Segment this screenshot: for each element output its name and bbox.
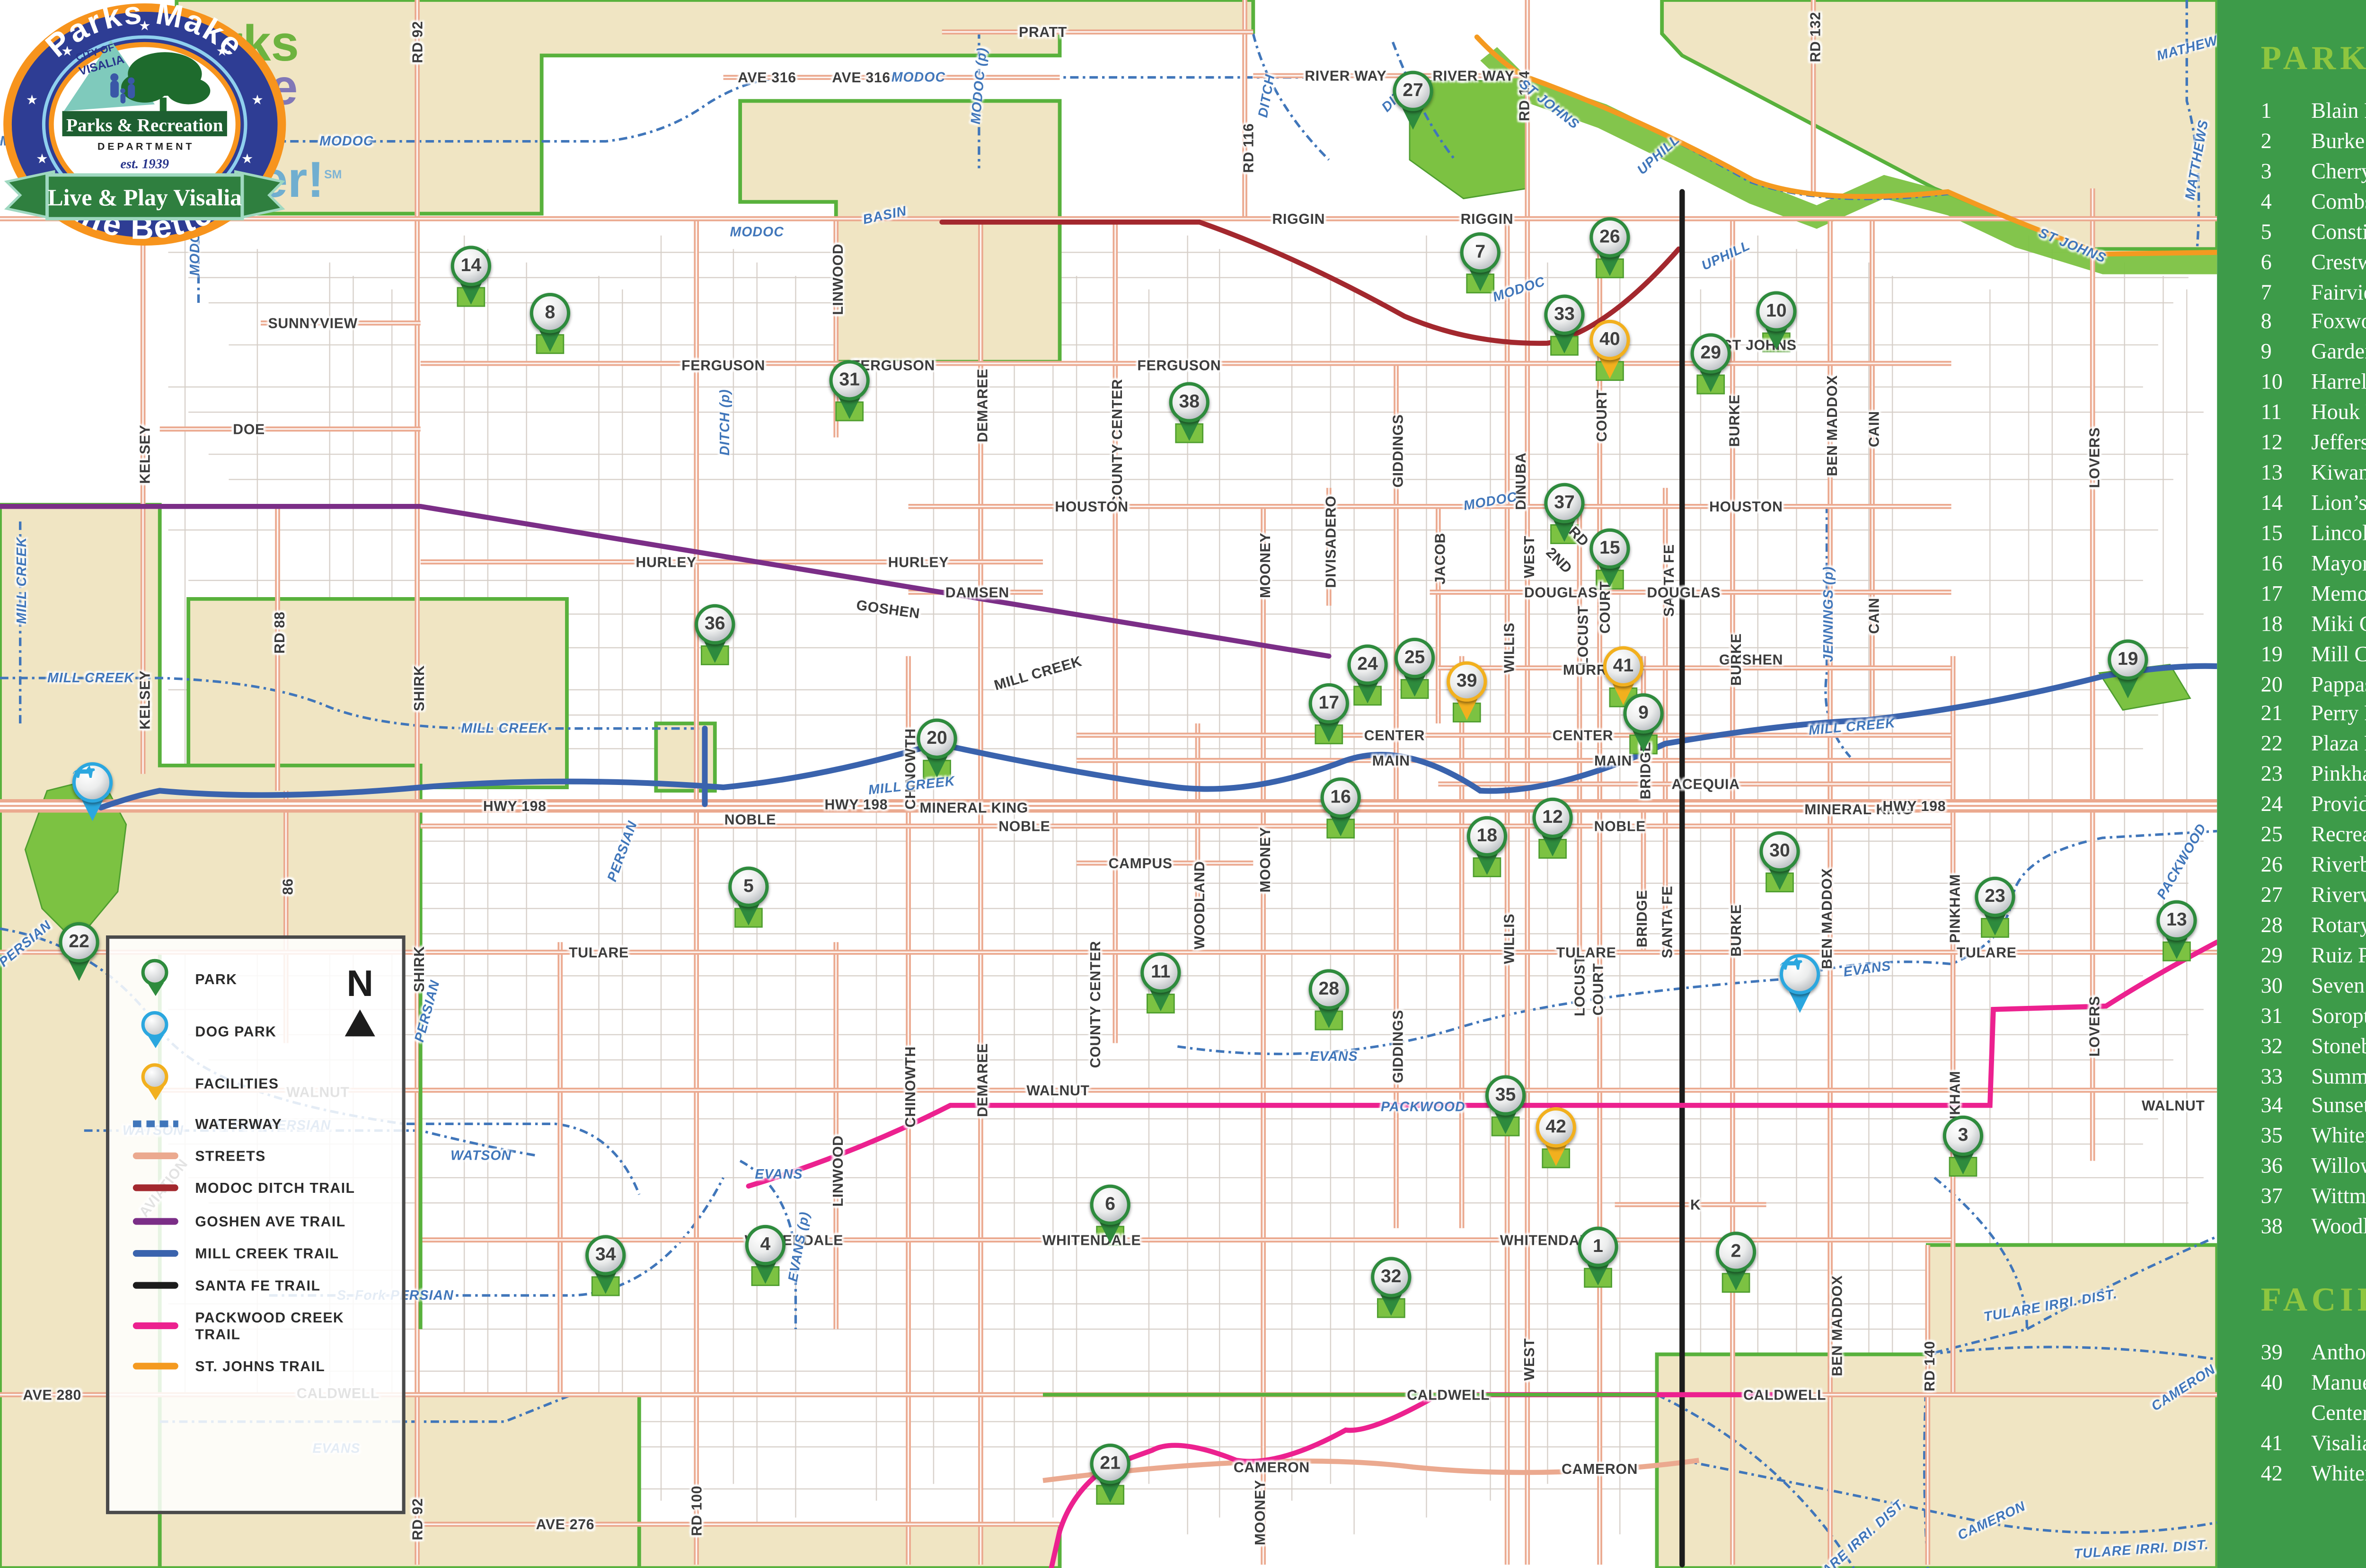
list-name: Riverbend Park [2311,850,2366,880]
park-item-23: 23Pinkham Park [2261,759,2366,790]
list-name: Kiwanis Park [2311,458,2366,488]
pin-head: 32 [1371,1257,1411,1297]
legend-line-icon [133,1153,178,1159]
map-pin-14[interactable]: 14 [449,246,493,309]
list-name: Foxwood Park [2311,307,2366,337]
list-number: 24 [2261,789,2312,819]
map-pin-21[interactable]: 21 [1088,1444,1132,1507]
list-number: 9 [2261,337,2312,367]
street-label-river-way: RIVER WAY [1432,67,1514,84]
map-pin-12[interactable]: 12 [1531,798,1574,862]
legend-line-icon [133,1282,178,1288]
list-number: 11 [2261,397,2312,428]
street-label-lovers: LOVERS [2086,427,2103,488]
street-label-demaree: DEMAREE [974,1043,991,1117]
map-pin-10[interactable]: 10 [1755,291,1798,355]
legend-item-santa-fe-trail: SANTA FE TRAIL [133,1277,385,1294]
parks-title: PARKS [2261,40,2366,79]
park-item-37: 37Wittman Village Park [2261,1181,2366,1212]
list-name: Mill Creek Garden Park [2311,639,2366,669]
street-label-west: WEST [1521,1338,1538,1381]
street-label-woodland: WOODLAND [1191,861,1208,950]
park-item-36: 36Willow Glen Park [2261,1151,2366,1181]
street-label-county-center: COUNTY CENTER [1109,379,1126,506]
legend-item-label: MODOC DITCH TRAIL [195,1180,355,1197]
north-arrow-icon [345,1009,375,1036]
street-label-county-center: COUNTY CENTER [1086,941,1104,1068]
street-label-cameron: CAMERON [1234,1459,1310,1476]
list-name: Summers Park [2311,1061,2366,1091]
street-label-riggin: RIGGIN [1461,210,1514,227]
street-label-mineral-king: MINERAL KING [919,799,1028,816]
list-number: 41 [2261,1428,2312,1458]
street-label-ferguson: FERGUSON [681,357,765,374]
waterway-label-modoc: MODOC [892,70,945,85]
list-number: 33 [2261,1061,2312,1091]
street-label-santa-fe: SANTA FE [1660,544,1677,617]
street-label-walnut: WALNUT [2142,1097,2205,1114]
map-pin-5[interactable]: 5 [727,867,770,931]
street-label-douglas: DOUGLAS [1647,584,1721,601]
street-label-mooney: MOONEY [1256,532,1273,598]
facilities-list: 39Anthony Community Center40Manuel F. He… [2261,1338,2366,1489]
map-pin-22[interactable]: 22 [57,922,101,986]
svg-text:D E P A R T M E N T: D E P A R T M E N T [97,141,192,152]
list-name: Combs Park [2311,186,2366,217]
map-pin-42[interactable]: 42 [1534,1107,1578,1171]
park-item-17: 17Memorial Park [2261,578,2366,608]
street-label-rd-92: RD 92 [409,1498,426,1540]
list-name: Cherry Meadow Park [2311,156,2366,186]
street-label-bridge: BRIDGE [1633,890,1651,948]
park-item-14: 14Lion’s Park [2261,488,2366,518]
street-label-jacob: JACOB [1431,533,1448,584]
list-number: 2 [2261,126,2312,156]
street-label-kelsey: KELSEY [136,670,153,730]
pin-head: 17 [1309,683,1349,723]
waterway-label-evans: EVANS [1310,1049,1358,1064]
street-label-tulare: TULARE [1957,944,2017,961]
street-label-center: CENTER [1553,727,1614,744]
list-name: Seven Oaks Park [2311,970,2366,1001]
map-pin-24[interactable]: 24 [1346,644,1389,708]
legend-waterway-icon [133,1120,178,1127]
svg-text:est. 1939: est. 1939 [120,157,169,172]
park-item-35: 35Whitendale Park [2261,1121,2366,1151]
list-name: Lion’s Park [2311,488,2366,518]
list-number: 32 [2261,1031,2312,1061]
map-pin-40[interactable]: 40 [1588,320,1632,384]
legend-item-mill-creek-trail: MILL CREEK TRAIL [133,1244,385,1261]
pin-head: 5 [728,867,768,907]
pin-head: 35 [1485,1075,1526,1115]
list-name: Sunset Park [2311,1091,2366,1121]
north-arrow: N [345,962,375,1036]
street-label-caldwell: CALDWELL [1743,1386,1826,1403]
legend-pin-icon [133,959,178,999]
list-name: Pinkham Park [2311,759,2366,790]
pin-head: 29 [1691,333,1731,373]
pin-head: 9 [1623,693,1663,733]
pin-head: 36 [695,604,735,644]
map-pin-9[interactable]: 9 [1622,693,1665,757]
street-label-river-way: RIVER WAY [1305,67,1386,84]
street-label-ave-316: AVE 316 [738,69,796,86]
map-pin-37[interactable]: 37 [1543,483,1586,547]
map-pin-29[interactable]: 29 [1689,333,1732,397]
waterway-label-mill-creek: MILL CREEK [461,721,548,736]
street-label-mooney: MOONEY [1256,827,1273,893]
street-label-burke: BURKE [1726,394,1743,447]
map-pin-7[interactable]: 7 [1458,232,1502,296]
list-number: 38 [2261,1212,2312,1242]
legend-item-label: STREETS [195,1148,265,1165]
map-pin-33[interactable]: 33 [1543,295,1586,359]
svg-text:★: ★ [251,92,263,107]
street-label-ave-280: AVE 280 [23,1386,81,1403]
park-item-3: 3Cherry Meadow Park [2261,156,2366,186]
street-label-cameron: CAMERON [1562,1460,1638,1477]
street-label-pinkham: PINKHAM [1946,874,1963,943]
list-name: Plaza Park [2311,729,2366,759]
legend-item-facilities: FACILITIES [133,1063,385,1103]
list-number: 22 [2261,729,2312,759]
park-item-11: 11Houk Park [2261,397,2366,428]
street-label-hurley: HURLEY [636,554,697,571]
waterway-label-packwood: PACKWOOD [1381,1100,1466,1115]
map-pin-30[interactable]: 30 [1758,831,1801,895]
waterway-label-mill-creek: MILL CREEK [14,537,29,624]
street-label-demaree: DEMAREE [974,369,991,442]
list-name: Ruiz Park [2311,940,2366,970]
pin-head: 26 [1589,217,1630,257]
list-name: Manuel F. Hernandez Community Center [2311,1368,2366,1428]
street-label-shirk: SHIRK [410,946,427,992]
park-item-21: 21Perry Family Park [2261,699,2366,729]
street-label-court: COURT [1593,389,1610,442]
pin-head: 19 [2108,639,2148,679]
street-label-rd-100: RD 100 [688,1486,705,1536]
map-pin-26[interactable]: 26 [1588,217,1632,281]
list-number: 28 [2261,910,2312,940]
map-pin-4[interactable]: 4 [743,1225,787,1289]
list-name: Visalia Senior Center [2311,1428,2366,1458]
legend-item-label: DOG PARK [195,1023,276,1040]
facility-item-40: 40Manuel F. Hernandez Community Center [2261,1368,2366,1428]
street-label-linwood: LINWOOD [830,244,847,315]
street-label-noble: NOBLE [1594,818,1646,835]
park-item-28: 28Rotary Park [2261,910,2366,940]
map-pin-31[interactable]: 31 [828,360,871,424]
pin-head: 22 [59,922,99,962]
map-pin-32[interactable]: 32 [1369,1257,1413,1321]
svg-text:Parks & Recreation: Parks & Recreation [66,115,223,135]
list-number: 10 [2261,367,2312,397]
pin-head: 28 [1309,969,1349,1009]
list-number: 42 [2261,1458,2312,1489]
map-pin-38[interactable]: 38 [1167,382,1211,446]
pin-head: 24 [1347,644,1387,685]
list-number: 14 [2261,488,2312,518]
list-number: 5 [2261,217,2312,247]
park-item-25: 25Recreation Park [2261,819,2366,850]
list-number: 15 [2261,518,2312,548]
map-pin-8[interactable]: 8 [528,293,572,357]
legend-item-packwood-creek-trail: PACKWOOD CREEK TRAIL [133,1309,385,1343]
waterway-label-ditch-p-: DITCH (p) [717,389,733,456]
street-label-kelsey: KELSEY [136,424,153,484]
pin-head: 20 [917,719,957,759]
park-item-19: 19Mill Creek Garden Park [2261,639,2366,669]
pin-head: 6 [1090,1185,1130,1225]
street-label-86: 86 [279,878,296,895]
pin-head: 18 [1467,816,1507,856]
map-pin-16[interactable]: 16 [1319,777,1362,841]
list-number: 6 [2261,247,2312,277]
legend-item-label: PARK [195,971,237,988]
svg-text:★: ★ [36,151,48,167]
pin-head: 37 [1544,483,1584,523]
list-name: Crestwood Park [2311,247,2366,277]
map-pin-dog-park[interactable] [71,762,114,826]
map-pin-25[interactable]: 25 [1393,638,1436,702]
street-label-hurley: HURLEY [888,554,949,571]
park-item-29: 29Ruiz Park [2261,940,2366,970]
street-label-noble: NOBLE [724,811,776,828]
map-pin-15[interactable]: 15 [1588,529,1632,592]
parks-list: 1Blain Park2Burke Park3Cherry Meadow Par… [2261,96,2366,1242]
street-label-ben-maddox: BEN MADDOX [1823,375,1840,476]
park-item-20: 20Pappas Park [2261,669,2366,699]
legend-item-label: WATERWAY [195,1115,282,1132]
facility-item-41: 41Visalia Senior Center [2261,1428,2366,1458]
park-item-18: 18Miki City Park [2261,608,2366,639]
street-label-main: MAIN [1372,752,1410,769]
street-label-k: K [1690,1196,1701,1213]
pin-head: 16 [1321,777,1361,818]
street-label-locust: LOCUST [1574,606,1591,667]
list-name: Memorial Park [2311,578,2366,608]
department-badge: CITY OF VISALIA Parks & Recreation D E P… [0,0,289,263]
map-pin-23[interactable]: 23 [1973,877,2017,941]
list-number: 12 [2261,428,2312,458]
park-item-34: 34Sunset Park [2261,1091,2366,1121]
street-label-burke: BURKE [1728,633,1745,686]
pin-head: 38 [1169,382,1209,422]
street-label-divisadero: DIVISADERO [1322,495,1339,588]
street-label-santa-fe: SANTA FE [1659,886,1676,958]
map-canvas[interactable]: PRATTAVE 316AVE 316RIVER WAYRIVER WAYRD … [0,0,2217,1568]
street-label-riggin: RIGGIN [1272,210,1325,227]
map-pin-18[interactable]: 18 [1465,816,1509,880]
pin-head: 25 [1395,638,1435,678]
map-pin-3[interactable]: 3 [1941,1116,1985,1180]
street-label-court: COURT [1589,963,1607,1015]
street-label-rd-132: RD 132 [1807,12,1824,62]
sidebar: PARKS 1Blain Park2Burke Park3Cherry Mead… [2217,0,2366,1568]
legend-item-label: GOSHEN AVE TRAIL [195,1212,345,1229]
legend-pin-icon [133,1011,178,1051]
street-label-shirk: SHIRK [410,665,427,712]
pin-head: 4 [745,1225,786,1265]
list-name: Burke Park [2311,126,2366,156]
street-label-hwy-198: HWY 198 [483,797,547,814]
pin-head: 27 [1393,71,1433,111]
waterway-label-evans: EVANS [755,1167,803,1182]
street-label-ben-maddox: BEN MADDOX [1828,1275,1845,1376]
legend-item-modoc-ditch-trail: MODOC DITCH TRAIL [133,1180,385,1197]
list-number: 17 [2261,578,2312,608]
map-pin-19[interactable]: 19 [2106,639,2150,703]
map-pin-1[interactable]: 1 [1576,1226,1620,1290]
street-label-rd-140: RD 140 [1921,1341,1938,1392]
pin-head: 33 [1544,295,1584,335]
list-name: Riverway Sports Park [2311,880,2366,910]
list-number: 13 [2261,458,2312,488]
legend-item-label: MILL CREEK TRAIL [195,1244,339,1261]
pin-head: 7 [1460,232,1501,273]
street-label-locust: LOCUST [1571,955,1588,1016]
street-label-ave-276: AVE 276 [536,1516,595,1533]
park-item-26: 26Riverbend Park [2261,850,2366,880]
street-label-tulare: TULARE [1556,944,1616,961]
street-label-giddings: GIDDINGS [1389,1010,1406,1083]
park-item-16: 16Mayor’s Park [2261,548,2366,579]
map-pin-6[interactable]: 6 [1088,1185,1132,1249]
pin-head: 41 [1603,646,1643,687]
map-pin-28[interactable]: 28 [1307,969,1351,1033]
street-label-rd-116: RD 116 [1240,123,1257,173]
list-number: 26 [2261,850,2312,880]
park-item-30: 30Seven Oaks Park [2261,970,2366,1001]
street-label-campus: CAMPUS [1109,854,1173,872]
park-item-38: 38Woodland Park [2261,1212,2366,1242]
waterway-label-modoc: MODOC [730,225,784,240]
street-label-burke: BURKE [1728,904,1745,957]
legend-item-label: PACKWOOD CREEK TRAIL [195,1309,385,1343]
list-name: Whitendale Park [2311,1121,2366,1151]
park-item-24: 24Provident Skate Park [2261,789,2366,819]
legend-item-label: FACILITIES [195,1075,279,1092]
park-item-31: 31Soroptimist Park [2261,1000,2366,1031]
pin-head: 13 [2156,900,2197,941]
list-name: Woodland Park [2311,1212,2366,1242]
legend-line-icon [133,1217,178,1224]
list-number: 18 [2261,608,2312,639]
pin-head: 40 [1589,320,1630,360]
legend-item-label: SANTA FE TRAIL [195,1277,320,1294]
list-name: Recreation Park [2311,819,2366,850]
street-label-rd-92: RD 92 [409,21,426,63]
map-pin-2[interactable]: 2 [1714,1232,1757,1295]
map-pin-35[interactable]: 35 [1483,1075,1527,1139]
list-name: Fairview Park [2311,277,2366,307]
pin-head: 10 [1756,291,1796,331]
map-pin-27[interactable]: 27 [1391,71,1435,135]
list-number: 21 [2261,699,2312,729]
street-label-willis: WILLIS [1501,914,1518,964]
street-label-noble: NOBLE [998,818,1050,835]
street-label-sunnyview: SUNNYVIEW [268,315,357,332]
street-label-walnut: WALNUT [1026,1082,1090,1099]
pin-head: 3 [1943,1116,1983,1156]
legend-pin-icon [133,1063,178,1103]
list-name: Jefferson Park [2311,428,2366,458]
poster: PRATTAVE 316AVE 316RIVER WAYRIVER WAYRD … [0,0,2366,1568]
legend: N PARKDOG PARKFACILITIESWATERWAYSTREETSM… [106,935,406,1514]
list-name: Whitendale Community Center [2311,1458,2366,1489]
list-number: 27 [2261,880,2312,910]
map-pin-dog-park[interactable] [1778,954,1821,1018]
street-label-center: CENTER [1364,727,1425,744]
pin-head: 23 [1975,877,2015,917]
list-name: Garden Street Plaza [2311,337,2366,367]
svg-text:★: ★ [26,92,38,107]
map-pin-11[interactable]: 11 [1139,952,1183,1016]
map-pin-39[interactable]: 39 [1445,661,1489,725]
list-name: Wittman Village Park [2311,1181,2366,1212]
waterway-label-watson: WATSON [450,1148,512,1163]
legend-line-icon [133,1250,178,1256]
list-number: 37 [2261,1181,2312,1212]
street-label-hwy-198: HWY 198 [825,796,888,813]
list-number: 30 [2261,970,2312,1001]
list-name: Blain Park [2311,96,2366,126]
pin-head: 14 [451,246,491,286]
list-name: Rotary Park [2311,910,2366,940]
list-number: 34 [2261,1091,2312,1121]
pin-head: 42 [1536,1107,1576,1147]
svg-text:★: ★ [241,151,253,167]
street-label-ave-316: AVE 316 [832,69,891,86]
list-name: Willow Glen Park [2311,1151,2366,1181]
park-item-10: 10Harrell Grove Park [2261,367,2366,397]
list-name: Harrell Grove Park [2311,367,2366,397]
list-name: Pappas Park [2311,669,2366,699]
list-number: 40 [2261,1368,2312,1428]
list-number: 4 [2261,186,2312,217]
map-pin-34[interactable]: 34 [584,1235,627,1299]
park-item-27: 27Riverway Sports Park [2261,880,2366,910]
list-name: Mayor’s Park [2311,548,2366,579]
map-pin-20[interactable]: 20 [915,719,959,783]
park-item-32: 32Stonebrook Park [2261,1031,2366,1061]
map-pin-13[interactable]: 13 [2155,900,2198,964]
park-item-6: 6Crestwood Park [2261,247,2366,277]
list-name: Miki City Park [2311,608,2366,639]
street-label-hwy-198: HWY 198 [1882,797,1946,814]
street-label-cain: CAIN [1865,411,1882,447]
street-label-ferguson: FERGUSON [1137,357,1221,374]
map-pin-36[interactable]: 36 [693,604,737,668]
legend-item-goshen-ave-trail: GOSHEN AVE TRAIL [133,1212,385,1229]
list-name: Lincoln Oval Park [2311,518,2366,548]
street-label-giddings: GIDDINGS [1389,414,1406,487]
pin-head: 30 [1759,831,1800,872]
street-label-west: WEST [1521,536,1538,578]
park-item-12: 12Jefferson Park [2261,428,2366,458]
pin-head: 21 [1090,1444,1130,1484]
list-number: 39 [2261,1338,2312,1368]
street-label-caldwell: CALDWELL [1407,1386,1490,1403]
map-pin-17[interactable]: 17 [1307,683,1351,747]
city-boundary-extra [421,952,1657,1395]
list-number: 31 [2261,1000,2312,1031]
park-item-2: 2Burke Park [2261,126,2366,156]
street-label-damsen: DAMSEN [945,584,1009,601]
park-item-7: 7Fairview Park [2261,277,2366,307]
pin-head: 39 [1447,661,1487,702]
